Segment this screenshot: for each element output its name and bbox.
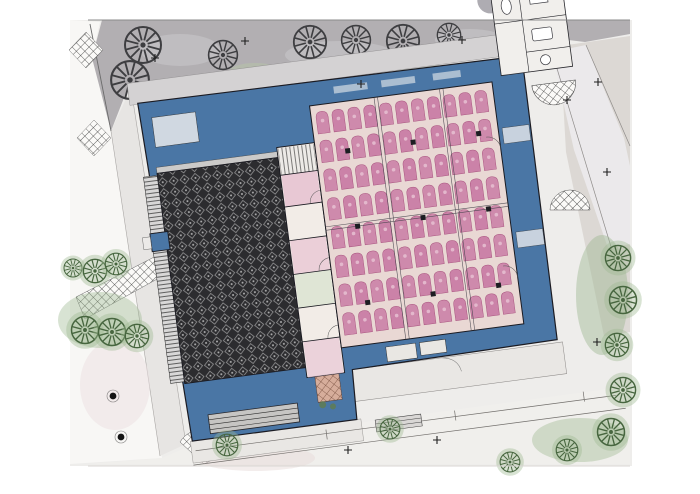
west-entrance-block: [150, 231, 170, 251]
column: [355, 223, 361, 229]
column: [410, 139, 416, 145]
bollard-dot: [118, 434, 125, 441]
stair-room: [278, 144, 317, 175]
column: [430, 291, 436, 297]
carpeted-room: [281, 170, 321, 206]
site-plan: [0, 0, 700, 494]
column: [365, 300, 371, 306]
column: [476, 131, 482, 137]
column: [486, 206, 492, 212]
fixture: [531, 27, 552, 42]
terracotta-hatch: [315, 372, 342, 402]
corner-room: [152, 112, 200, 147]
west-entrance-step: [142, 237, 151, 250]
east-band-room: [516, 229, 545, 248]
column: [420, 215, 426, 221]
column: [496, 282, 502, 288]
east-band-room: [502, 124, 531, 143]
site-plan-canvas: [0, 0, 700, 494]
bollard-dot: [110, 393, 117, 400]
green-room: [294, 270, 334, 308]
carpeted-room: [303, 337, 343, 377]
column: [345, 148, 351, 154]
carpeted-room: [290, 236, 330, 274]
plaza-wash: [80, 340, 150, 430]
